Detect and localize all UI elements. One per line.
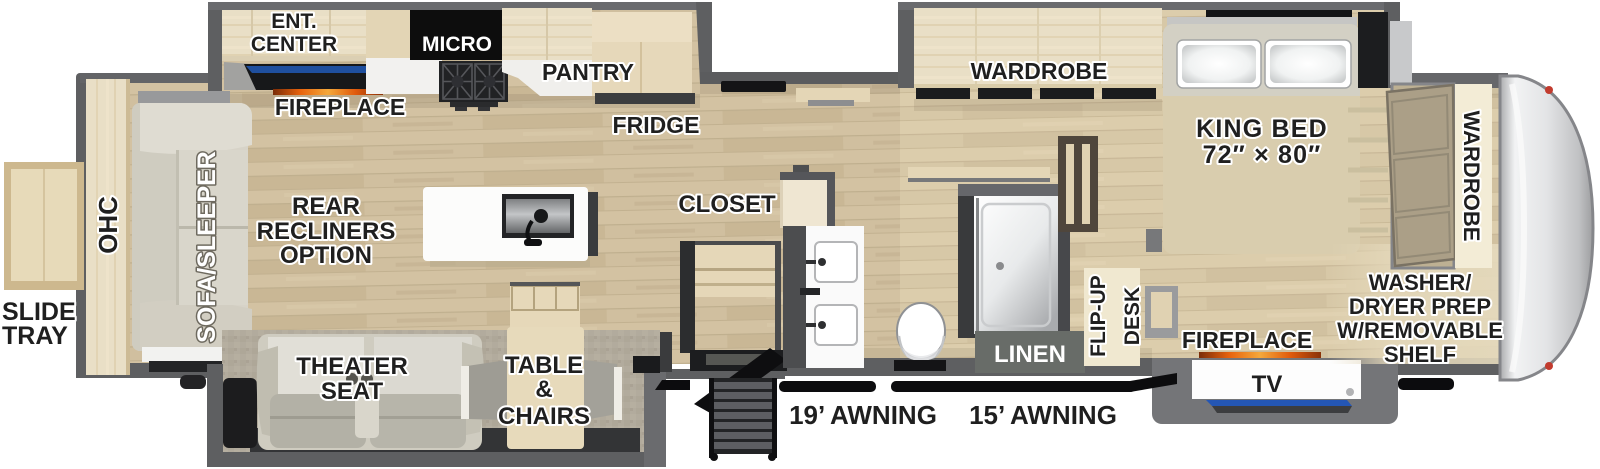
svg-text:OPTION: OPTION: [280, 242, 372, 269]
svg-text:TRAY: TRAY: [2, 322, 68, 350]
svg-text:TV: TV: [1252, 371, 1283, 398]
svg-text:WARDROBE: WARDROBE: [971, 58, 1108, 84]
svg-text:CHAIRS: CHAIRS: [498, 403, 590, 430]
svg-text:FIREPLACE: FIREPLACE: [1182, 327, 1312, 353]
svg-text:CENTER: CENTER: [251, 33, 337, 56]
svg-text:OHC: OHC: [93, 196, 123, 254]
svg-text:CLOSET: CLOSET: [678, 191, 776, 218]
svg-text:TABLE: TABLE: [505, 352, 583, 379]
svg-text:SEAT: SEAT: [321, 378, 384, 405]
svg-text:DRYER PREP: DRYER PREP: [1349, 294, 1491, 319]
svg-text:REAR: REAR: [292, 193, 360, 220]
svg-text:MICRO: MICRO: [422, 33, 492, 56]
svg-text:THEATER: THEATER: [296, 353, 408, 380]
svg-text:LINEN: LINEN: [994, 341, 1066, 368]
svg-text:SOFA/SLEEPER: SOFA/SLEEPER: [193, 151, 221, 343]
svg-text:KING BED: KING BED: [1196, 115, 1328, 143]
svg-text:RECLINERS: RECLINERS: [257, 218, 396, 245]
svg-text:W/REMOVABLE: W/REMOVABLE: [1337, 318, 1503, 343]
svg-text:FRIDGE: FRIDGE: [613, 112, 700, 138]
svg-text:WARDROBE: WARDROBE: [1459, 111, 1484, 242]
svg-text:DESK: DESK: [1121, 287, 1144, 345]
svg-text:ENT.: ENT.: [271, 10, 317, 33]
svg-text:WASHER/: WASHER/: [1369, 270, 1472, 295]
svg-text:SHELF: SHELF: [1384, 342, 1456, 367]
svg-text:FLIP-UP: FLIP-UP: [1087, 275, 1110, 357]
svg-text:&: &: [535, 376, 552, 403]
svg-text:15’ AWNING: 15’ AWNING: [969, 400, 1117, 430]
svg-text:FIREPLACE: FIREPLACE: [275, 94, 405, 120]
svg-text:PANTRY: PANTRY: [542, 59, 634, 85]
svg-text:72″ × 80″: 72″ × 80″: [1203, 141, 1322, 169]
svg-text:19’ AWNING: 19’ AWNING: [789, 400, 937, 430]
